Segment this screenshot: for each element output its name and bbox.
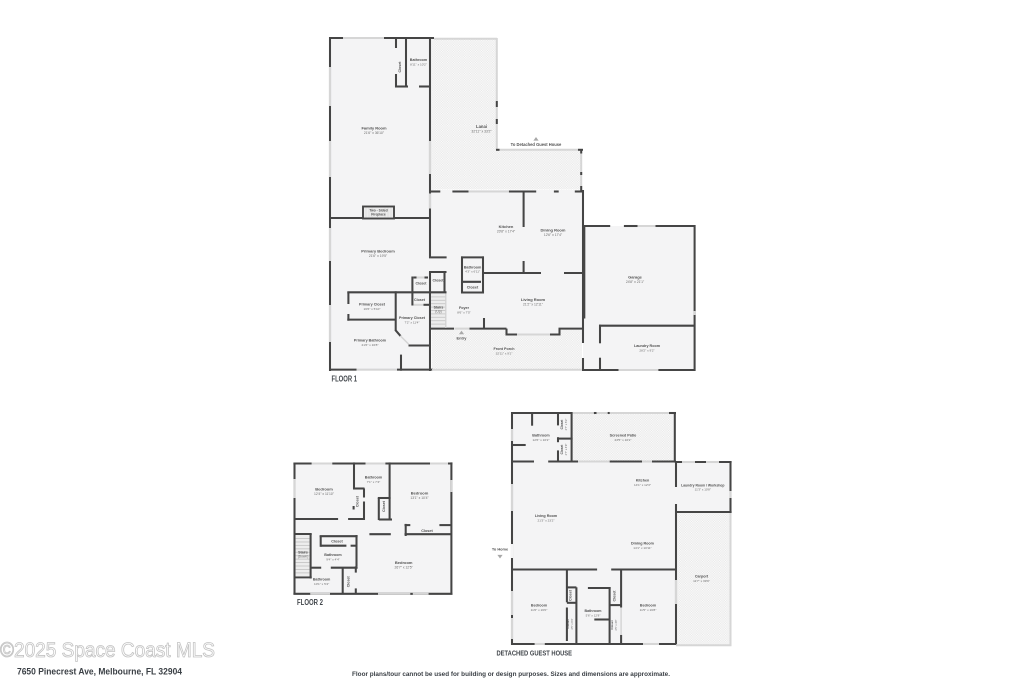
svg-text:DETACHED GUEST HOUSE: DETACHED GUEST HOUSE: [497, 648, 573, 657]
svg-text:14'1" x 12'3": 14'1" x 12'3": [634, 483, 651, 487]
svg-text:(Down): (Down): [298, 555, 309, 559]
svg-text:Closet: Closet: [398, 61, 402, 73]
svg-text:Closet: Closet: [569, 589, 573, 601]
svg-text:Closet: Closet: [433, 279, 445, 283]
svg-text:Closet: Closet: [355, 495, 359, 507]
svg-text:Closet: Closet: [416, 282, 428, 286]
svg-text:©2025 Space Coast MLS: ©2025 Space Coast MLS: [0, 639, 215, 662]
svg-text:13'1" x 10'4": 13'1" x 10'4": [410, 496, 429, 500]
svg-text:Closet: Closet: [331, 539, 343, 543]
svg-text:11'7" x 39'9": 11'7" x 39'9": [693, 579, 710, 583]
svg-text:21'2" x 12'11": 21'2" x 12'11": [523, 302, 544, 306]
svg-text:Entry: Entry: [457, 336, 468, 341]
svg-text:To Detached Guest House: To Detached Guest House: [511, 142, 562, 147]
svg-text:12'6" x 17'4": 12'6" x 17'4": [544, 233, 563, 237]
svg-text:21'6" x 36'10": 21'6" x 36'10": [364, 131, 385, 135]
svg-text:16'6" x 5'10": 16'6" x 5'10": [364, 307, 381, 311]
svg-text:7'1" x 7'4": 7'1" x 7'4": [367, 480, 381, 484]
svg-text:Closet: Closet: [610, 620, 614, 629]
svg-text:Dining Room: Dining Room: [541, 228, 566, 233]
svg-text:FLOOR 1: FLOOR 1: [332, 375, 358, 384]
svg-text:2'5" x 6'4": 2'5" x 6'4": [571, 618, 574, 629]
svg-text:11'6" x 16'0": 11'6" x 16'0": [531, 608, 548, 612]
svg-text:24'8" x 21'1": 24'8" x 21'1": [626, 280, 645, 284]
svg-text:5'6" x 12'8": 5'6" x 12'8": [586, 613, 601, 617]
svg-text:Closet: Closet: [560, 444, 564, 455]
svg-text:2'7" x 4'9": 2'7" x 4'9": [564, 444, 568, 456]
svg-text:FLOOR 2: FLOOR 2: [297, 598, 324, 607]
svg-text:Kitchen: Kitchen: [499, 224, 514, 229]
svg-text:Garage: Garage: [628, 275, 643, 280]
svg-text:(Up): (Up): [435, 310, 441, 314]
svg-text:2'5" x 4'9": 2'5" x 4'9": [615, 619, 618, 630]
svg-text:Closet: Closet: [467, 285, 479, 289]
svg-text:21'6" x 19'5": 21'6" x 19'5": [369, 254, 388, 258]
svg-text:9'4" x 4'4": 9'4" x 4'4": [326, 557, 340, 561]
svg-text:32'11" x 9'1": 32'11" x 9'1": [496, 351, 513, 355]
svg-text:Closet: Closet: [414, 298, 426, 302]
svg-text:Bedroom: Bedroom: [411, 491, 429, 496]
svg-text:21'6" x 16'8": 21'6" x 16'8": [362, 343, 379, 347]
svg-text:32'11" x 33'2": 32'11" x 33'2": [471, 129, 492, 133]
svg-text:Closet: Closet: [566, 619, 570, 628]
svg-text:Family Room: Family Room: [361, 126, 387, 131]
svg-text:2'7" x 5'3": 2'7" x 5'3": [564, 419, 568, 431]
svg-text:Closet: Closet: [560, 419, 564, 430]
svg-text:8'6" x 7'5": 8'6" x 7'5": [457, 310, 471, 314]
svg-text:Floor plans/tour cannot be use: Floor plans/tour cannot be used for buil…: [352, 671, 670, 678]
svg-text:8'11" x 10'2": 8'11" x 10'2": [410, 62, 427, 66]
svg-text:10'1" x 5'4": 10'1" x 5'4": [314, 582, 329, 586]
svg-text:28'2" x 9'2": 28'2" x 9'2": [639, 348, 654, 352]
svg-text:4'3" x 6'11": 4'3" x 6'11": [465, 270, 480, 274]
svg-text:12'4" x 11'10": 12'4" x 11'10": [314, 492, 335, 496]
svg-text:11'3" x 10'8": 11'3" x 10'8": [695, 488, 711, 492]
svg-text:To Home: To Home: [492, 547, 509, 552]
svg-text:20'8" x 17'4": 20'8" x 17'4": [497, 229, 516, 233]
svg-text:Bedroom: Bedroom: [315, 487, 333, 492]
svg-text:12'6" x 10'2": 12'6" x 10'2": [533, 438, 550, 442]
svg-text:Lanai: Lanai: [476, 124, 487, 129]
svg-text:11'5" x 16'8": 11'5" x 16'8": [640, 608, 657, 612]
svg-text:Closet: Closet: [346, 576, 350, 588]
svg-text:26'7" x 12'5": 26'7" x 12'5": [395, 565, 414, 569]
svg-text:Fireplace: Fireplace: [371, 213, 386, 217]
svg-text:21'3" x 23'2": 21'3" x 23'2": [538, 518, 555, 522]
svg-text:Closet: Closet: [612, 590, 616, 602]
svg-text:14'1" x 10'11": 14'1" x 10'11": [633, 546, 651, 550]
svg-text:Closet: Closet: [421, 529, 433, 533]
svg-text:Bedroom: Bedroom: [395, 560, 413, 565]
svg-text:Primary Bedroom: Primary Bedroom: [361, 249, 395, 254]
svg-text:23'5" x 10'2": 23'5" x 10'2": [615, 438, 632, 442]
svg-text:7'2" x 11'4": 7'2" x 11'4": [404, 320, 419, 324]
svg-text:7650 Pinecrest Ave, Melbourne,: 7650 Pinecrest Ave, Melbourne, FL 32904: [17, 667, 182, 677]
svg-text:Living Room: Living Room: [521, 297, 546, 302]
svg-text:Closet: Closet: [382, 500, 386, 512]
